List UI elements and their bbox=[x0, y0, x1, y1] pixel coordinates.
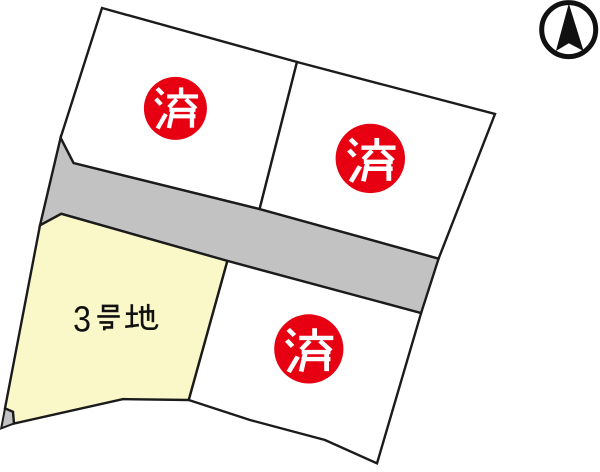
svg-text:3: 3 bbox=[73, 300, 91, 340]
